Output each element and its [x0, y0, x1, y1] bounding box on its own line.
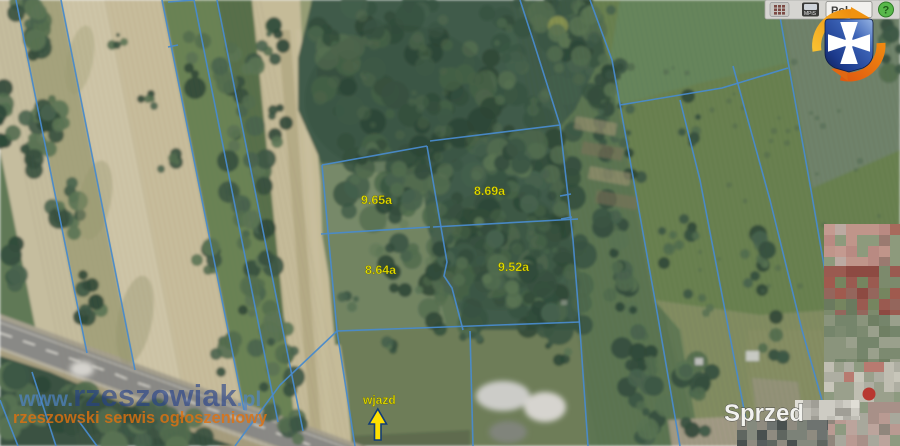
svg-text:9.52a: 9.52a: [498, 260, 529, 274]
svg-text:8.64a: 8.64a: [365, 263, 396, 277]
svg-text:?: ?: [883, 5, 890, 17]
svg-text:MPiS: MPiS: [804, 11, 817, 17]
svg-text:wjazd: wjazd: [362, 393, 396, 407]
svg-text:9.65a: 9.65a: [361, 193, 392, 207]
svg-text:Sprzed: Sprzed: [724, 400, 804, 427]
svg-text:rzeszowski serwis ogłoszeniowy: rzeszowski serwis ogłoszeniowy: [13, 409, 268, 427]
svg-text:8.69a: 8.69a: [474, 184, 505, 198]
